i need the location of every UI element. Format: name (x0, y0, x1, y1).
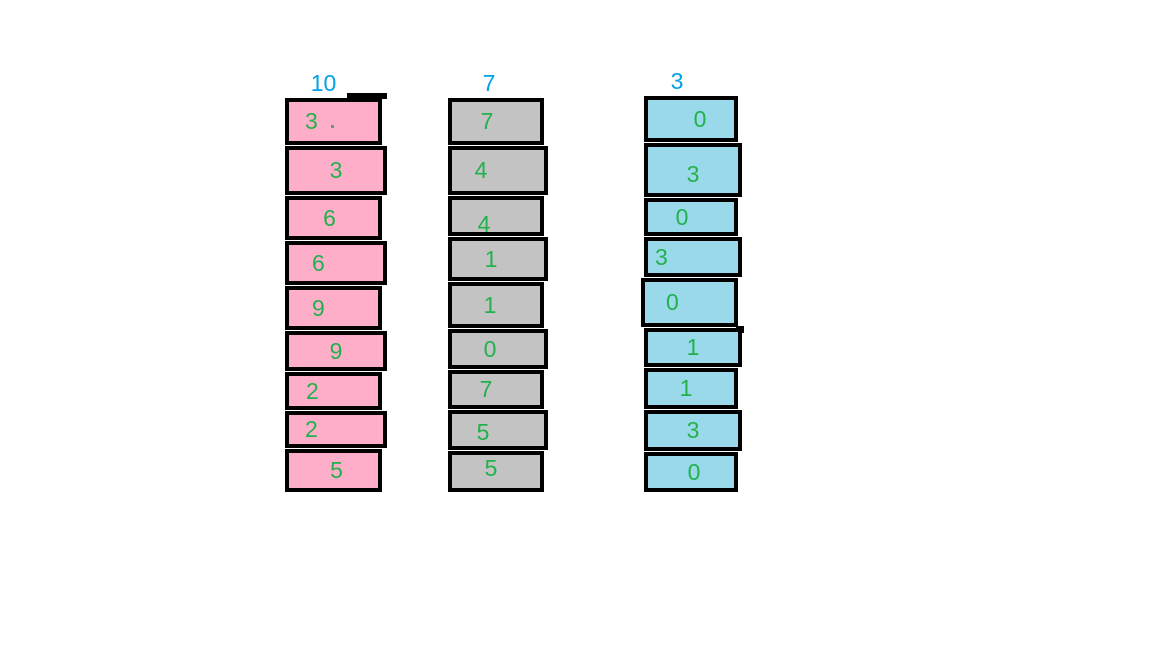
array-cell: 3 (285, 146, 387, 195)
cell-value: 3 (305, 110, 318, 133)
column-3-count-label: 3 (630, 70, 724, 93)
cell-value: 2 (305, 418, 318, 441)
column-2-count-label: 7 (441, 72, 537, 95)
array-column-1: 10 3 3 6 6 9 9 2 2 5 (285, 98, 382, 492)
array-cell: 3 (644, 410, 742, 451)
array-column-3: 3 0 3 0 3 0 1 1 3 0 (644, 96, 738, 492)
cell-value: 1 (680, 377, 693, 400)
array-column-2: 7 7 4 4 1 1 0 7 5 5 (448, 98, 544, 492)
array-cell: 4 (448, 146, 548, 195)
array-cell: 6 (285, 196, 382, 240)
cell-value: 3 (687, 419, 700, 442)
cell-value: 5 (330, 459, 343, 482)
array-cell: 1 (448, 282, 544, 328)
column-2-cells: 7 4 4 1 1 0 7 5 5 (448, 98, 544, 492)
array-cell: 3 (285, 98, 382, 145)
array-cell: 4 (448, 196, 544, 236)
cell-value: 3 (655, 246, 668, 269)
cell-value: 7 (481, 110, 494, 133)
cell-value: 2 (306, 380, 319, 403)
cell-value: 1 (687, 336, 700, 359)
array-cell: 6 (285, 241, 387, 285)
cell-value: 3 (687, 163, 700, 186)
array-cell: 5 (448, 451, 544, 492)
column-1-cells: 3 3 6 6 9 9 2 2 5 (285, 98, 382, 492)
array-cell: 3 (644, 143, 742, 197)
array-cell: 0 (644, 198, 738, 236)
array-cell: 0 (448, 329, 548, 369)
cell-value: 6 (312, 252, 325, 275)
cell-value: 0 (666, 291, 679, 314)
paint-canvas: 10 3 3 6 6 9 9 2 2 5 7 7 4 4 1 1 0 7 5 5… (0, 0, 1152, 648)
cell-value: 3 (330, 159, 343, 182)
array-cell: 0 (644, 452, 738, 492)
cell-value: 5 (485, 457, 498, 480)
cell-value: 0 (484, 338, 497, 361)
array-cell: 0 (644, 96, 738, 142)
array-cell: 2 (285, 411, 387, 448)
cell-value: 9 (330, 340, 343, 363)
stray-dot (331, 125, 334, 128)
cell-value: 6 (323, 207, 336, 230)
cell-value: 0 (694, 108, 707, 131)
array-cell: 0 (641, 278, 738, 327)
array-cell: 5 (285, 449, 382, 492)
column-1-count-label: 10 (275, 72, 372, 95)
array-cell: 1 (448, 237, 548, 281)
cell-value: 1 (484, 294, 497, 317)
cell-value: 1 (485, 248, 498, 271)
column-3-cells: 0 3 0 3 0 1 1 3 0 (644, 96, 738, 492)
cell-value: 9 (312, 297, 325, 320)
array-cell: 9 (285, 286, 382, 330)
array-cell: 1 (644, 328, 742, 367)
array-cell: 3 (644, 237, 742, 277)
array-cell: 5 (448, 410, 548, 450)
cell-value: 0 (688, 461, 701, 484)
cell-value: 7 (480, 378, 493, 401)
array-cell: 9 (285, 331, 387, 371)
cell-value: 0 (676, 206, 689, 229)
cell-value: 4 (478, 213, 491, 236)
array-cell: 2 (285, 372, 382, 410)
array-cell: 1 (644, 368, 738, 409)
array-cell: 7 (448, 370, 544, 409)
cell-value: 4 (475, 159, 488, 182)
array-cell: 7 (448, 98, 544, 145)
cell-value: 5 (477, 421, 490, 444)
